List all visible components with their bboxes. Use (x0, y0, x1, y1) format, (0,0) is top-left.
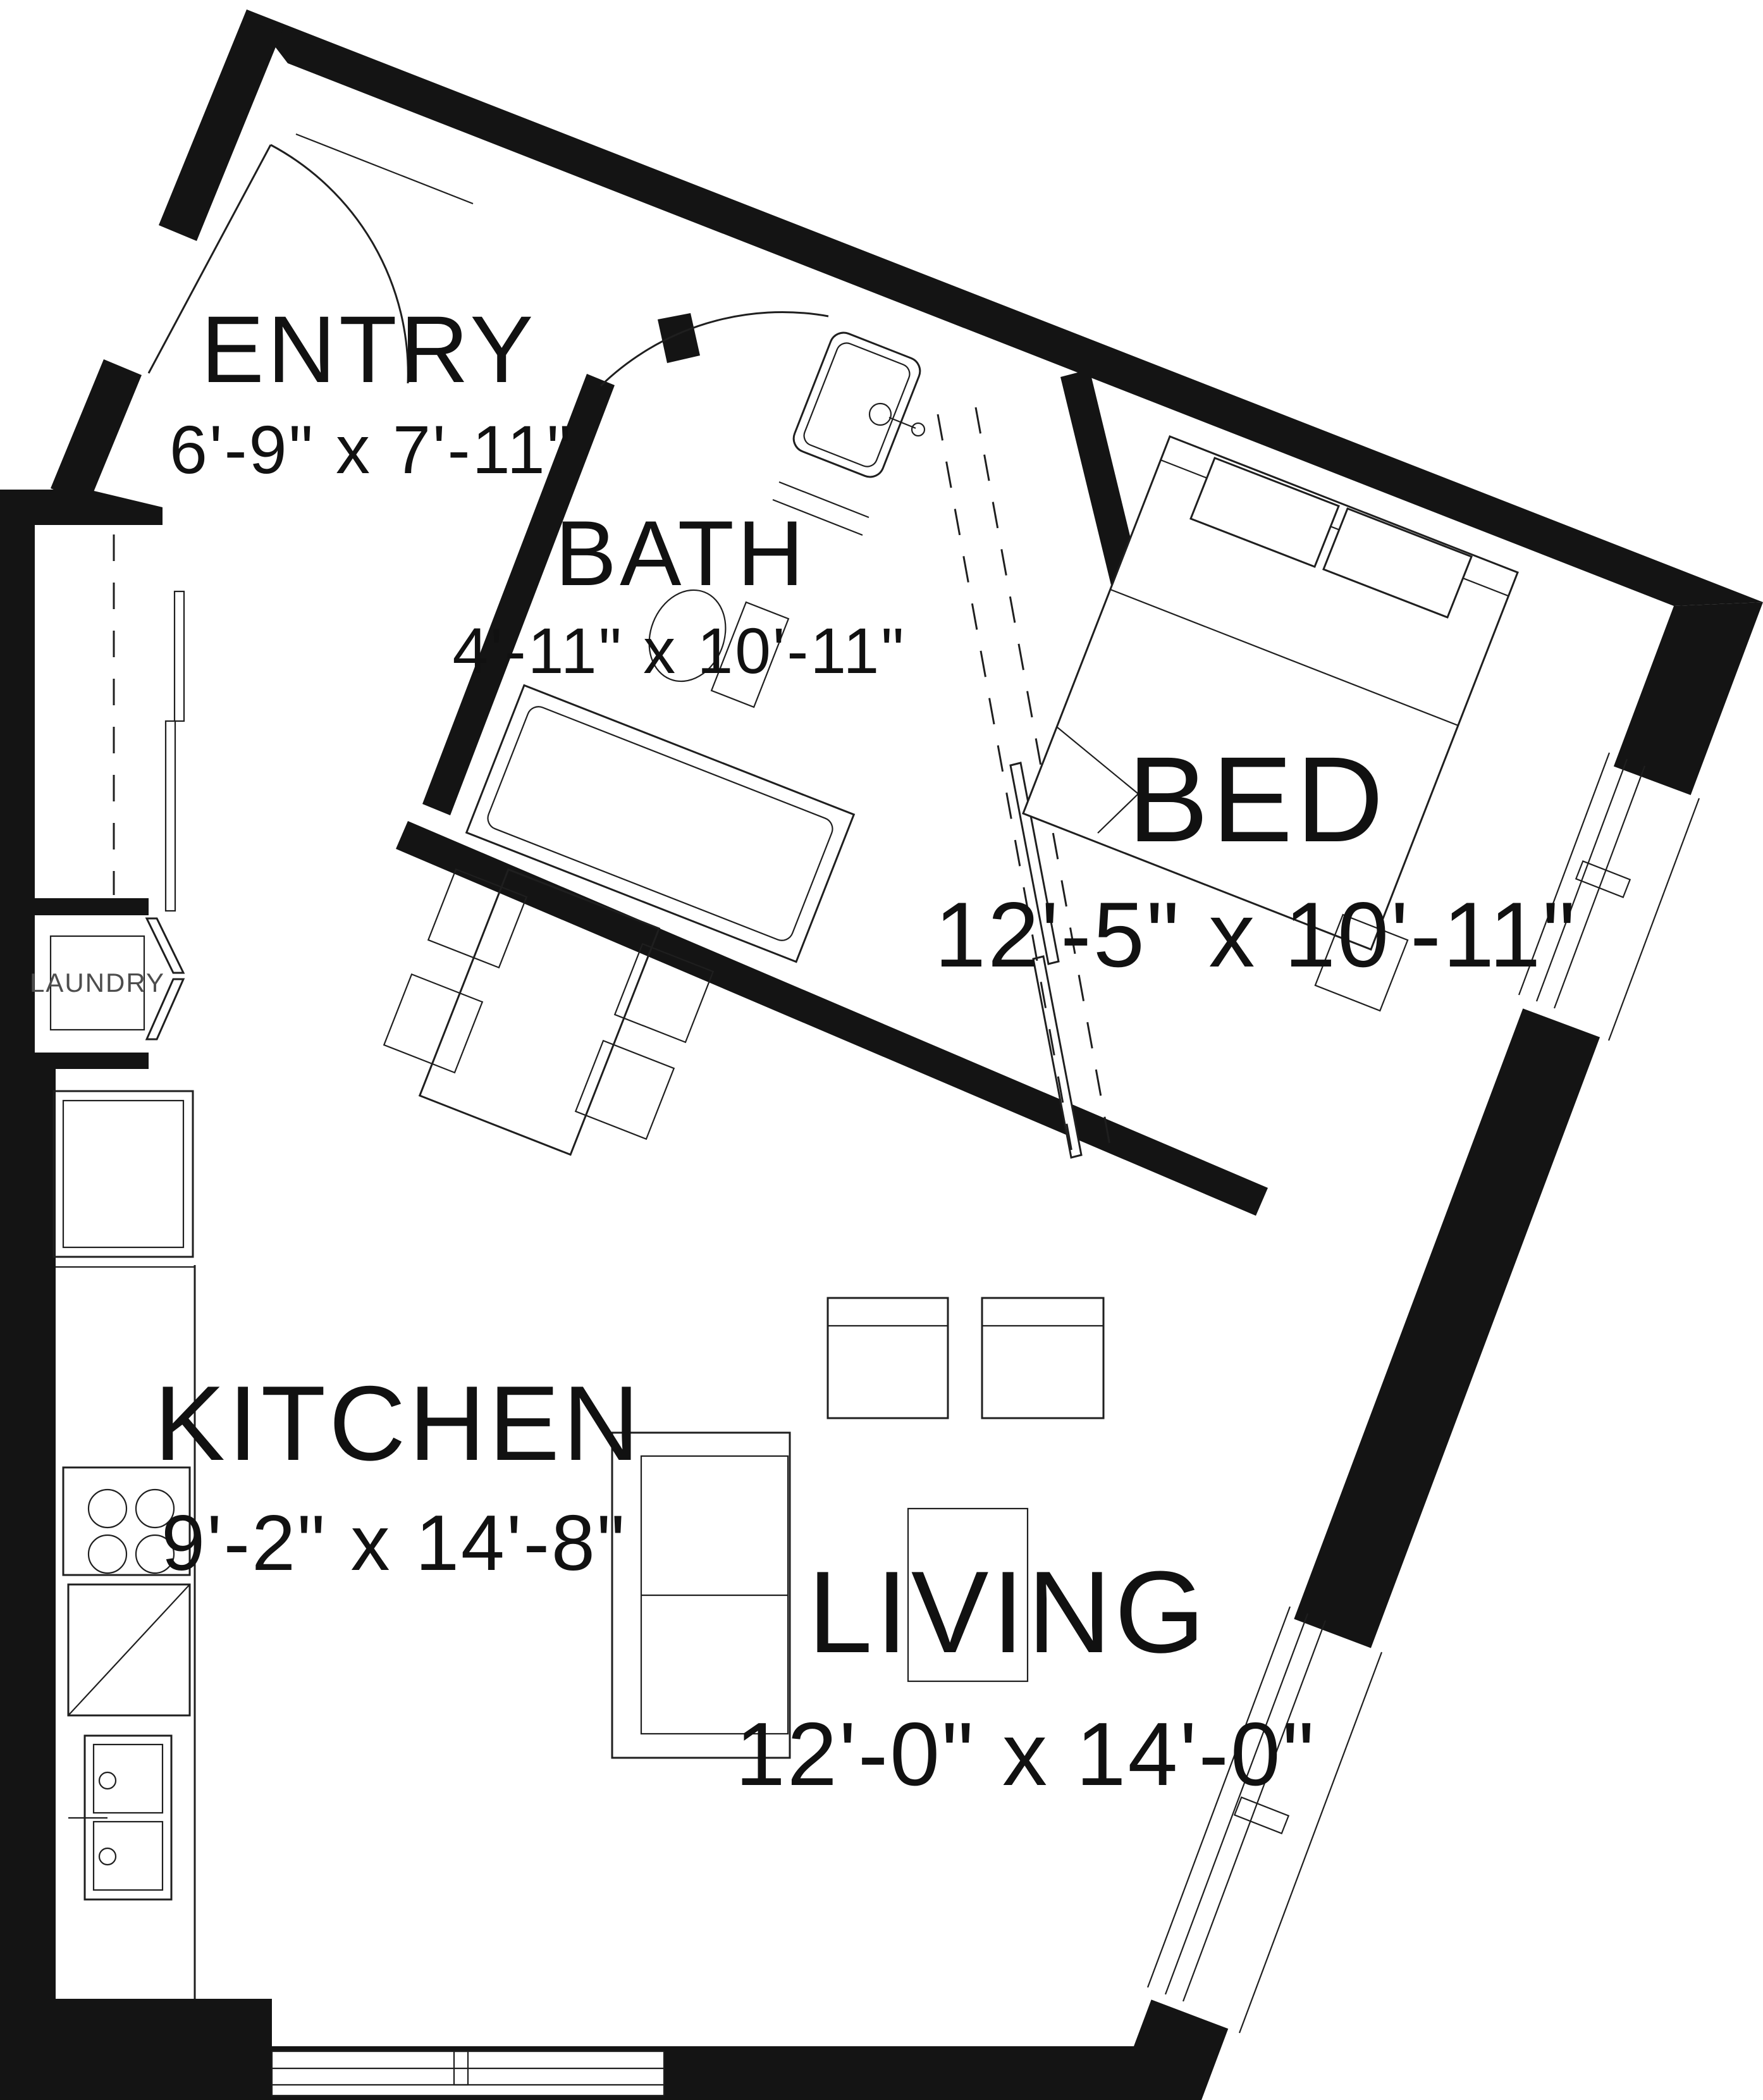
laundry-pier-bottom (35, 1053, 149, 1069)
living-label: LIVING (808, 1547, 1208, 1677)
dishwasher (68, 1584, 190, 1715)
entry-label: ENTRY (201, 296, 537, 402)
refrigerator (54, 1091, 193, 1257)
dining-chair-2 (384, 974, 482, 1073)
kitchen-dims: 9'-2" x 14'-8" (161, 1500, 627, 1587)
wall-bottom-left (0, 1999, 272, 2100)
entry-dims: 6'-9" x 7'-11" (169, 411, 573, 488)
wall-entry-upper (159, 9, 285, 241)
bed-dims: 12'-5" x 10'-11" (935, 883, 1577, 986)
dining-chair-4 (575, 1041, 674, 1139)
bathtub (467, 685, 854, 961)
entry-closet-panel-2 (166, 721, 175, 911)
entry-header-line (296, 134, 473, 204)
living-dims: 12'-0" x 14'-0" (735, 1704, 1316, 1805)
entry-closet-panel-1 (175, 591, 184, 721)
wall-entry-lower (51, 359, 142, 504)
dining-table (420, 870, 659, 1155)
armchair-1 (828, 1298, 948, 1418)
wall-bath-bottom (396, 821, 1268, 1216)
living-furniture (612, 1298, 1103, 1758)
bed-label: BED (1127, 731, 1387, 867)
kitchen-label: KITCHEN (154, 1364, 642, 1483)
bath-door-jamb (658, 313, 700, 363)
bath-label: BATH (555, 502, 808, 605)
floor-plan-drawing: ENTRY 6'-9" x 7'-11" BATH 4'-11" x 10'-1… (0, 0, 1763, 2100)
bath-door-arc (601, 312, 828, 386)
kitchen-living-window (272, 2051, 664, 2096)
bath-sink (790, 329, 924, 481)
wall-left-lower (0, 1069, 56, 2100)
armchair-2 (982, 1298, 1103, 1418)
floor-plan-page: ENTRY 6'-9" x 7'-11" BATH 4'-11" x 10'-1… (0, 0, 1763, 2100)
bath-dims: 4'-11" x 10'-11" (453, 615, 906, 687)
laundry-pier-top (35, 898, 149, 915)
laundry-label: LAUNDRY (30, 968, 165, 997)
kitchen-sink (68, 1736, 171, 1899)
